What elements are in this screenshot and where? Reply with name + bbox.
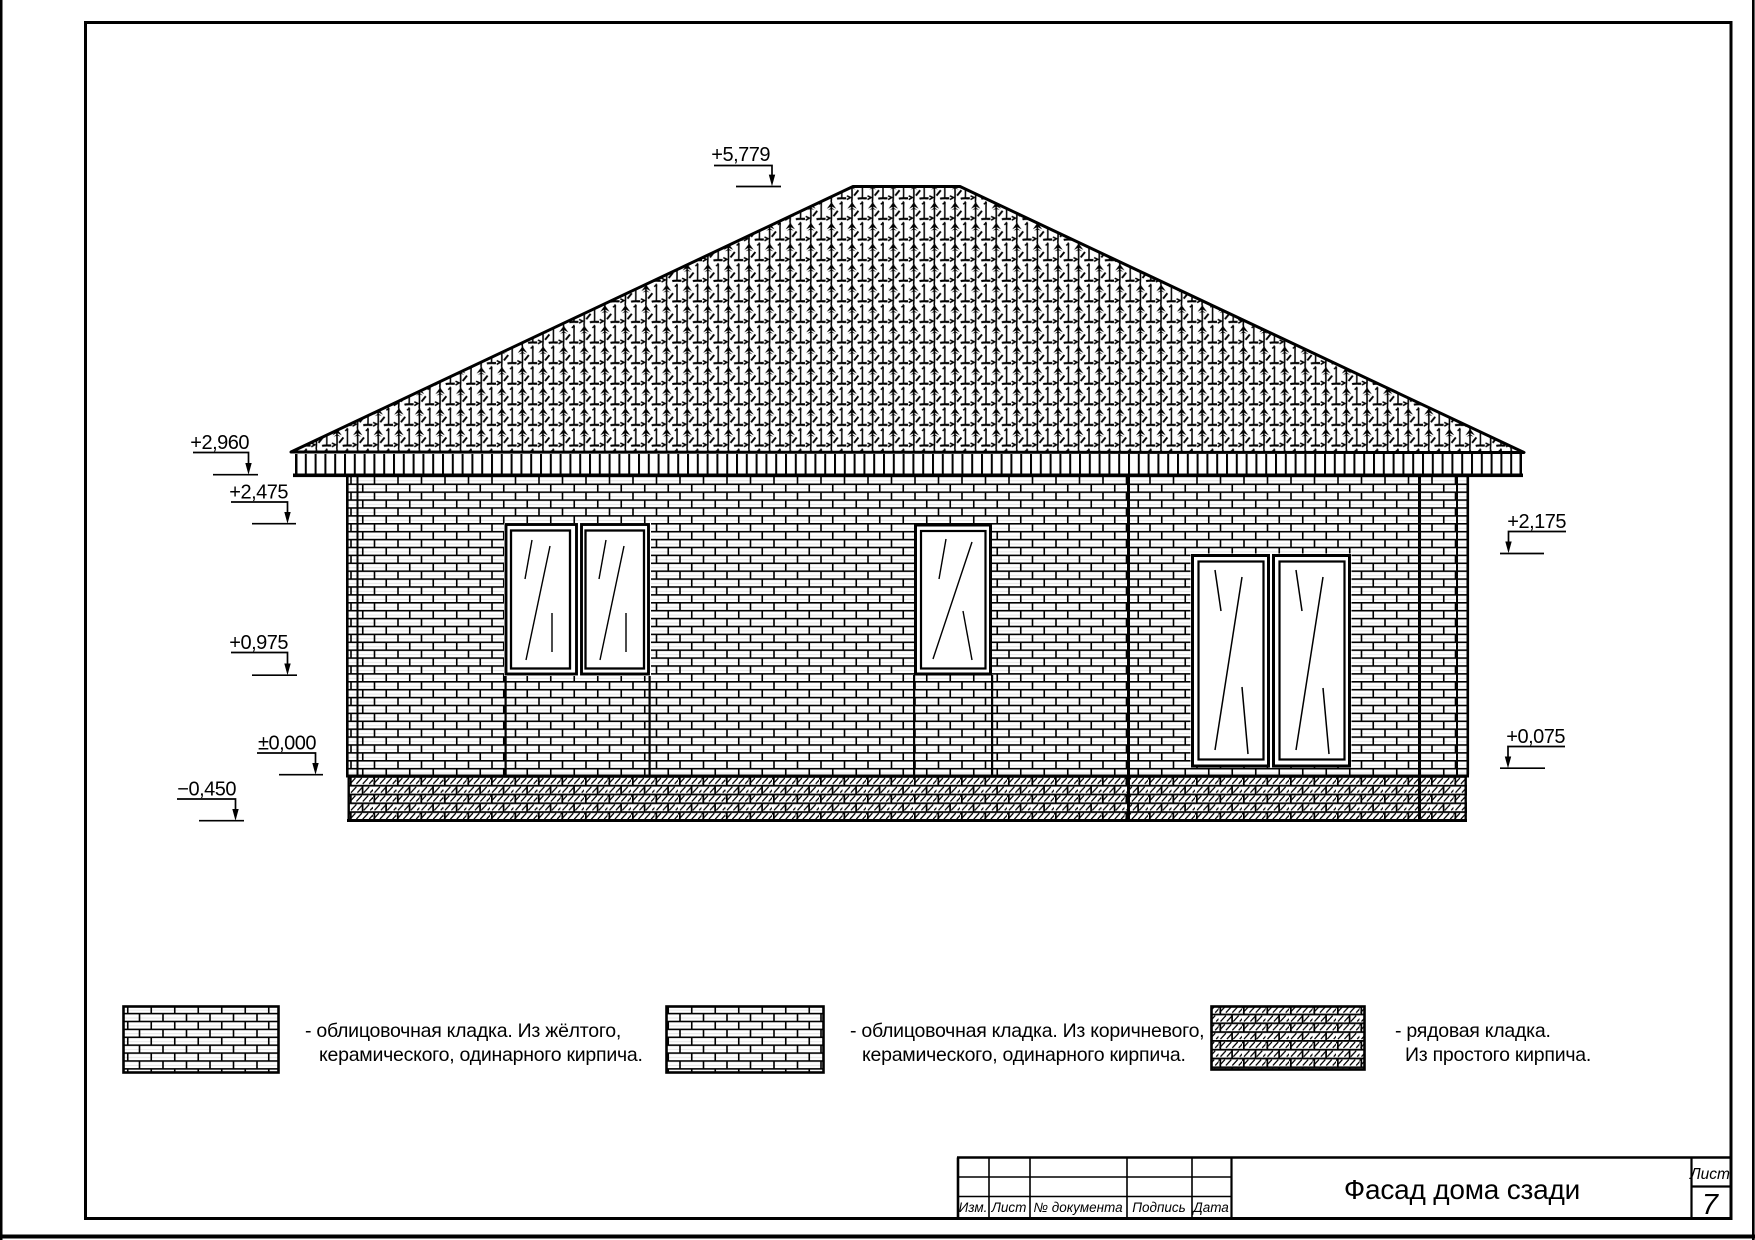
svg-text:керамического, одинарного кирп: керамического, одинарного кирпича. <box>862 1044 1186 1066</box>
svg-text:Дата: Дата <box>1191 1200 1229 1215</box>
svg-text:- облицовочная кладка. Из кори: - облицовочная кладка. Из коричневого, <box>850 1020 1204 1042</box>
svg-text:Из простого кирпича.: Из простого кирпича. <box>1405 1044 1591 1066</box>
svg-text:+5,779: +5,779 <box>711 144 770 166</box>
svg-text:+0,975: +0,975 <box>229 632 288 654</box>
svg-text:Лист: Лист <box>991 1200 1027 1215</box>
svg-text:Фасад дома сзади: Фасад дома сзади <box>1344 1174 1580 1205</box>
svg-text:- облицовочная кладка. Из жёлт: - облицовочная кладка. Из жёлтого, <box>305 1020 621 1042</box>
svg-text:Изм.: Изм. <box>959 1200 988 1215</box>
svg-text:- рядовая кладка.: - рядовая кладка. <box>1395 1020 1551 1042</box>
svg-text:+2,175: +2,175 <box>1507 511 1566 533</box>
svg-text:Подпись: Подпись <box>1132 1200 1186 1215</box>
svg-text:±0,000: ±0,000 <box>258 733 316 755</box>
svg-text:+2,475: +2,475 <box>229 482 288 504</box>
svg-text:7: 7 <box>1702 1189 1720 1221</box>
svg-text:керамического, одинарного кирп: керамического, одинарного кирпича. <box>319 1044 643 1066</box>
svg-text:№ документа: № документа <box>1033 1200 1123 1215</box>
svg-text:+0,075: +0,075 <box>1506 726 1565 748</box>
svg-text:+2,960: +2,960 <box>190 432 249 454</box>
svg-text:−0,450: −0,450 <box>177 779 236 801</box>
svg-text:Лист: Лист <box>1689 1166 1730 1183</box>
